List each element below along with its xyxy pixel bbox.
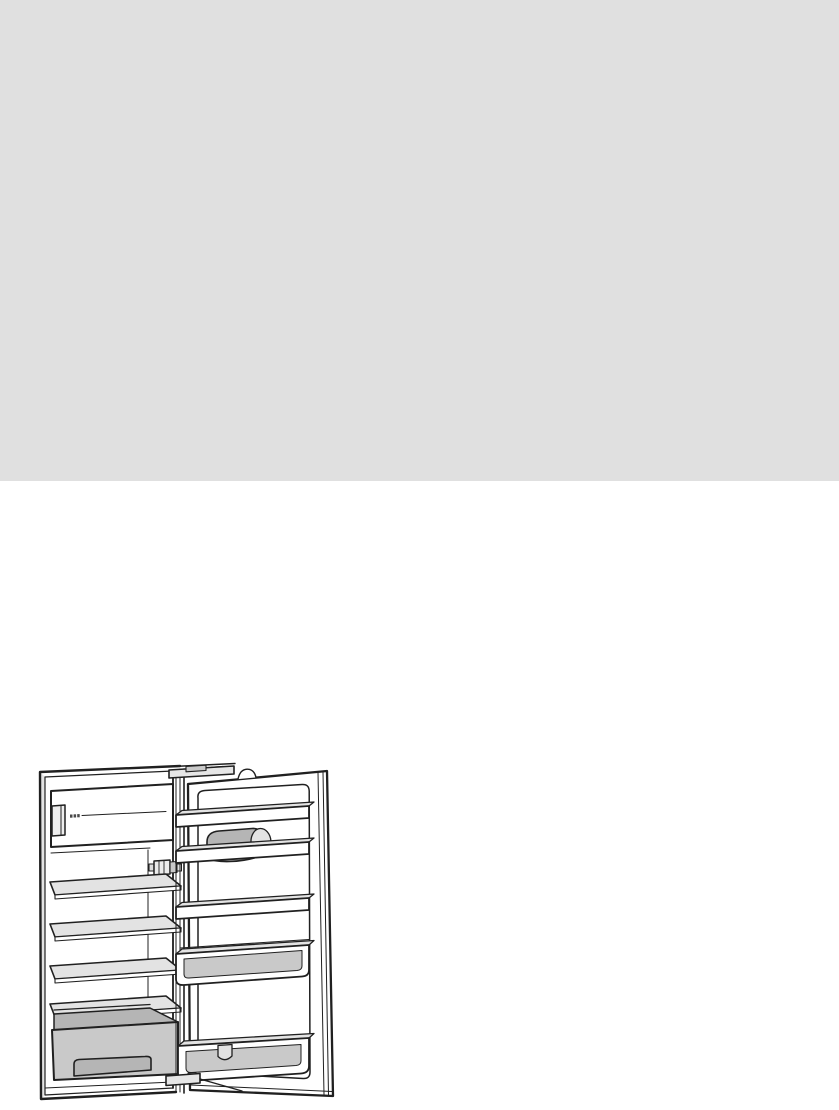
light-bulb-icon	[154, 860, 170, 875]
refrigerator-illustration	[30, 758, 342, 1106]
top-hinge	[169, 764, 256, 780]
glass-shelf-2	[50, 916, 181, 941]
vegetable-drawer	[52, 1005, 178, 1081]
bin-divider-clip	[218, 1045, 232, 1060]
glass-shelf-3	[50, 958, 181, 983]
hinge-plate	[166, 1074, 200, 1086]
glass-shelf-1	[50, 874, 181, 899]
hinge-pin	[186, 765, 206, 772]
freezer-flap-grip	[52, 805, 65, 836]
gray-placeholder-block	[0, 0, 839, 481]
freezer-flap-badge	[70, 814, 80, 818]
freezer-compartment-flap	[51, 784, 173, 847]
refrigerator-figure	[30, 758, 342, 1106]
freezer-compartment	[51, 784, 173, 853]
door-hinge-bump	[238, 769, 256, 779]
door	[176, 771, 333, 1096]
glass-shelves	[50, 874, 181, 1021]
